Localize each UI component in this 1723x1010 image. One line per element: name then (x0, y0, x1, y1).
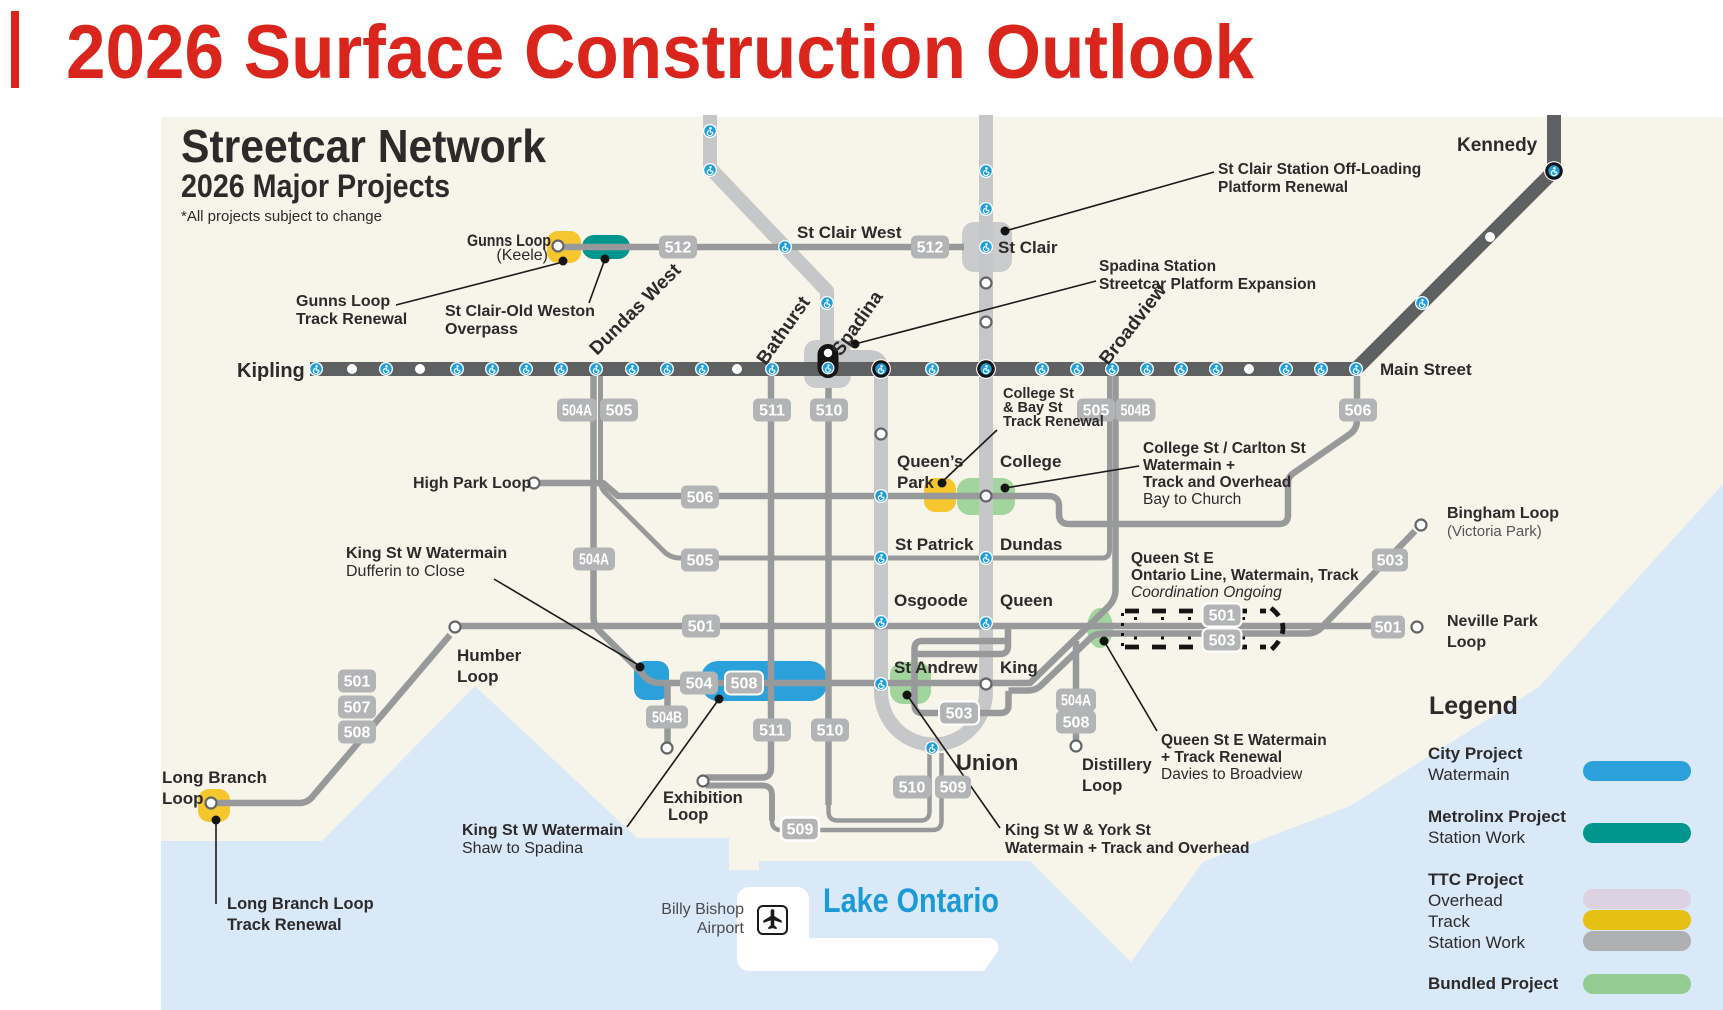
svg-text:(Victoria Park): (Victoria Park) (1447, 523, 1542, 540)
svg-text:Track Renewal: Track Renewal (1003, 414, 1104, 430)
svg-text:Loop: Loop (162, 789, 204, 808)
svg-text:Track Renewal: Track Renewal (227, 916, 342, 934)
svg-text:504A: 504A (579, 552, 609, 569)
svg-text:Davies to Broadview: Davies to Broadview (1161, 766, 1303, 783)
svg-text:Metrolinx Project: Metrolinx Project (1428, 807, 1566, 826)
svg-text:Kennedy: Kennedy (1457, 135, 1538, 156)
svg-text:St Clair-Old Weston: St Clair-Old Weston (445, 303, 595, 320)
svg-text:College St / Carlton St: College St / Carlton St (1143, 440, 1306, 457)
svg-text:St Andrew: St Andrew (894, 658, 978, 677)
svg-text:Station Work: Station Work (1428, 828, 1526, 847)
svg-text:Watermain + Track and Overhead: Watermain + Track and Overhead (1005, 840, 1250, 857)
svg-text:Station Work: Station Work (1428, 933, 1526, 952)
svg-text:Watermain +: Watermain + (1143, 457, 1235, 474)
svg-text:Coordination Ongoing: Coordination Ongoing (1131, 584, 1282, 601)
svg-text:509: 509 (940, 780, 967, 797)
svg-text:Exhibition: Exhibition (663, 789, 743, 807)
svg-text:Overpass: Overpass (445, 321, 518, 338)
svg-text:St Clair West: St Clair West (797, 223, 902, 242)
svg-text:Spadina Station: Spadina Station (1099, 258, 1216, 275)
svg-text:Loop: Loop (1447, 634, 1486, 651)
svg-text:2026 Major Projects: 2026 Major Projects (181, 168, 450, 204)
svg-text:Track Renewal: Track Renewal (296, 311, 407, 328)
svg-text:501: 501 (344, 674, 371, 691)
svg-text:504A: 504A (562, 403, 592, 420)
svg-text:King St W & York St: King St W & York St (1005, 822, 1151, 839)
svg-text:Loop: Loop (668, 806, 708, 824)
svg-text:Dundas: Dundas (1000, 535, 1062, 554)
svg-text:512: 512 (917, 240, 944, 257)
svg-text:505: 505 (606, 403, 633, 420)
svg-text:Dufferin to Close: Dufferin to Close (346, 563, 465, 580)
svg-text:504A: 504A (1061, 693, 1091, 710)
svg-text:508: 508 (1063, 715, 1090, 732)
svg-text:St Patrick: St Patrick (895, 535, 974, 554)
svg-text:+ Track Renewal: + Track Renewal (1161, 749, 1282, 766)
svg-text:Loop: Loop (1082, 777, 1122, 795)
svg-text:503: 503 (946, 706, 973, 723)
svg-text:College: College (1000, 452, 1061, 471)
svg-text:506: 506 (687, 490, 714, 507)
svg-text:503: 503 (1209, 633, 1236, 650)
svg-text:512: 512 (665, 240, 692, 257)
svg-text:Shaw to Spadina: Shaw to Spadina (462, 840, 583, 857)
svg-text:Humber: Humber (457, 646, 522, 665)
svg-text:Platform Renewal: Platform Renewal (1218, 179, 1348, 196)
svg-text:Neville Park: Neville Park (1447, 613, 1538, 630)
svg-text:Overhead: Overhead (1428, 891, 1503, 910)
svg-text:508: 508 (344, 725, 371, 742)
svg-text:Ontario Line, Watermain, Track: Ontario Line, Watermain, Track (1131, 567, 1359, 584)
svg-text:509: 509 (787, 822, 814, 839)
svg-text:510: 510 (899, 780, 926, 797)
svg-text:(Keele): (Keele) (496, 247, 548, 264)
svg-text:Track: Track (1428, 912, 1470, 931)
svg-text:St Clair: St Clair (998, 238, 1058, 257)
svg-text:505: 505 (687, 553, 714, 570)
svg-text:Streetcar Platform Expansion: Streetcar Platform Expansion (1099, 276, 1316, 293)
svg-text:511: 511 (759, 723, 785, 740)
svg-text:Distillery: Distillery (1082, 756, 1153, 774)
svg-text:Bay to Church: Bay to Church (1143, 491, 1241, 508)
svg-text:Bundled Project: Bundled Project (1428, 974, 1559, 993)
svg-text:511: 511 (759, 403, 785, 420)
svg-text:506: 506 (1345, 403, 1372, 420)
svg-text:King St W Watermain: King St W Watermain (462, 822, 623, 839)
svg-text:King St W Watermain: King St W Watermain (346, 545, 507, 562)
svg-text:King: King (1000, 658, 1038, 677)
svg-text:Gunns Loop: Gunns Loop (296, 293, 390, 310)
svg-text:Queen St E: Queen St E (1131, 550, 1214, 567)
svg-text:510: 510 (816, 403, 843, 420)
svg-text:501: 501 (1375, 620, 1402, 637)
svg-text:Airport: Airport (697, 920, 745, 937)
svg-text:508: 508 (731, 676, 758, 693)
svg-text:Osgoode: Osgoode (894, 591, 968, 610)
svg-text:501: 501 (1209, 608, 1236, 625)
svg-text:Kipling: Kipling (237, 360, 305, 382)
svg-text:501: 501 (688, 619, 715, 636)
svg-text:504B: 504B (652, 710, 682, 727)
svg-text:St Clair Station Off-Loading: St Clair Station Off-Loading (1218, 161, 1421, 178)
svg-text:Lake Ontario: Lake Ontario (823, 882, 999, 920)
svg-text:Queen’s: Queen’s (897, 452, 963, 471)
svg-text:Long Branch Loop: Long Branch Loop (227, 895, 374, 913)
svg-text:Bingham Loop: Bingham Loop (1447, 505, 1559, 522)
svg-text:TTC Project: TTC Project (1428, 870, 1524, 889)
svg-text:510: 510 (817, 723, 844, 740)
svg-text:Legend: Legend (1429, 692, 1518, 720)
svg-text:2026 Surface Construction Outl: 2026 Surface Construction Outlook (66, 10, 1255, 95)
svg-text:Billy Bishop: Billy Bishop (661, 901, 744, 918)
svg-text:Streetcar Network: Streetcar Network (181, 120, 546, 172)
svg-text:507: 507 (344, 700, 371, 717)
svg-text:Track and Overhead: Track and Overhead (1143, 474, 1291, 491)
svg-text:504: 504 (686, 676, 713, 693)
svg-text:Union: Union (956, 750, 1018, 775)
svg-text:Queen: Queen (1000, 591, 1053, 610)
svg-text:Watermain: Watermain (1428, 765, 1510, 784)
svg-text:Long Branch: Long Branch (162, 768, 267, 787)
svg-text:504B: 504B (1121, 403, 1151, 420)
svg-text:503: 503 (1377, 553, 1404, 570)
svg-text:Main Street: Main Street (1380, 360, 1472, 379)
svg-text:*All projects subject to chang: *All projects subject to change (181, 208, 382, 225)
svg-text:Park: Park (897, 473, 934, 492)
svg-text:Queen St E Watermain: Queen St E Watermain (1161, 732, 1327, 749)
svg-text:High Park Loop: High Park Loop (413, 475, 531, 492)
svg-text:City Project: City Project (1428, 744, 1523, 763)
svg-text:Loop: Loop (457, 667, 499, 686)
